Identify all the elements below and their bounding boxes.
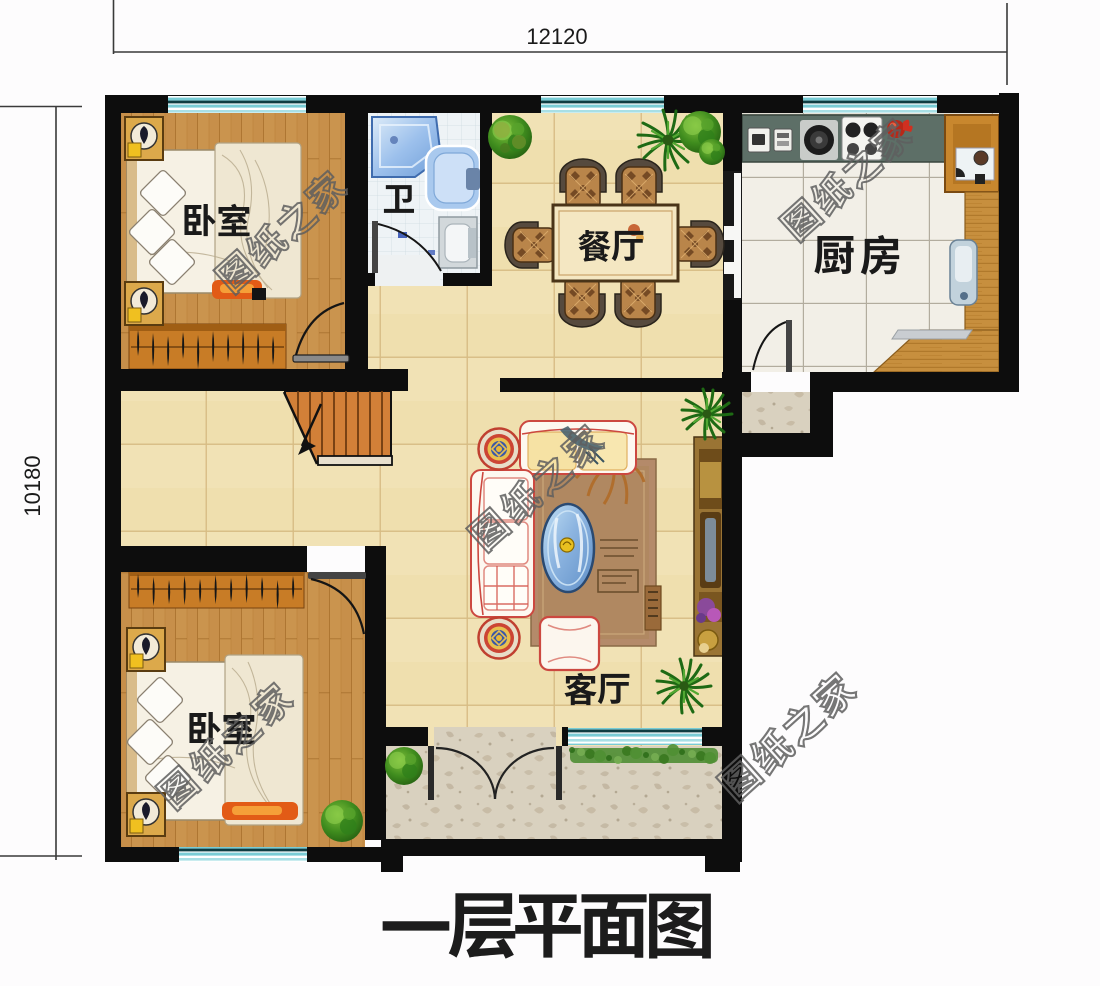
svg-text:12120: 12120 bbox=[526, 24, 587, 49]
svg-text:10180: 10180 bbox=[20, 455, 45, 516]
